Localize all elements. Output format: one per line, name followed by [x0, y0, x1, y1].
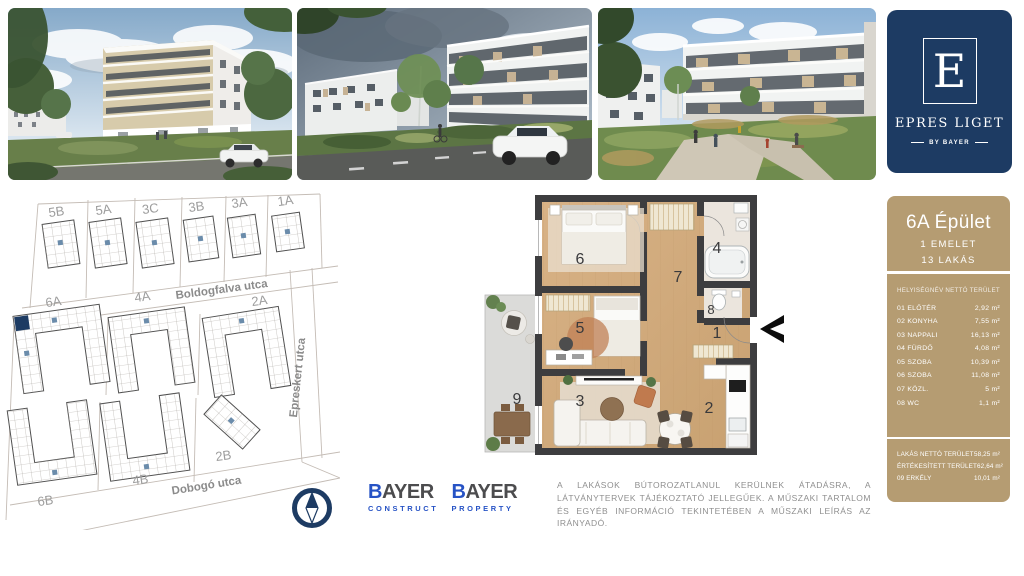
summary-name: 09 ERKÉLY	[897, 475, 932, 482]
room-name: 06 SZOBA	[897, 372, 932, 379]
label-building-4B: 4B	[131, 471, 149, 488]
label-building-2A: 2A	[250, 292, 268, 309]
building-3B[interactable]	[183, 216, 219, 262]
room-area-table: HELYISÉGNÉV NETTÓ TERÜLET 01 ELŐTÉR2,92 …	[887, 274, 1010, 437]
table-row: 08 WC1,1 m²	[897, 400, 1000, 407]
room-area: 10,39 m²	[971, 359, 1000, 366]
compass-icon	[295, 491, 330, 526]
photo-rendering-3-image	[598, 8, 876, 180]
table-row: 02 KONYHA7,55 m²	[897, 318, 1000, 325]
table-row: 06 SZOBA11,08 m²	[897, 372, 1000, 379]
room-area: 11,08 m²	[971, 372, 1000, 379]
floor-label: 1 EMELET	[891, 239, 1006, 250]
label-building-2B: 2B	[214, 447, 232, 464]
summary-row: ÉRTÉKESÍTETT TERÜLET62,64 m²	[897, 463, 1000, 470]
building-3C[interactable]	[136, 218, 174, 268]
panel-header: 6A Épület 1 EMELET 13 LAKÁS	[887, 196, 1010, 271]
label-building-5A: 5A	[94, 201, 112, 218]
photo-rendering-2-image	[297, 8, 592, 180]
table-row: 07 KÖZL.5 m²	[897, 386, 1000, 393]
balcony	[485, 295, 540, 452]
building-3A[interactable]	[227, 214, 260, 258]
bedroom-6-furniture	[548, 205, 644, 272]
column-room-name: HELYISÉGNÉV	[897, 287, 944, 294]
brand-letter: E	[933, 48, 967, 94]
street-epreskert: Epreskert utca	[288, 337, 308, 418]
building-5B[interactable]	[42, 220, 80, 268]
room-name: 02 KONYHA	[897, 318, 938, 325]
bayer-property-division: PROPERTY	[451, 505, 517, 513]
label-building-3B: 3B	[187, 198, 205, 215]
summary-name: ÉRTÉKESÍTETT TERÜLET	[897, 463, 977, 470]
brand-monogram: E	[923, 38, 977, 104]
table-row: 01 ELŐTÉR2,92 m²	[897, 305, 1000, 312]
building-2B[interactable]	[204, 395, 260, 449]
byline-text: BY BAYER	[929, 140, 970, 146]
room-number-5: 5	[576, 320, 585, 337]
table-header: HELYISÉGNÉV NETTÓ TERÜLET	[897, 287, 1000, 294]
byline-dash-left	[911, 142, 924, 143]
room-number-8: 8	[707, 302, 714, 317]
living-room-furniture	[554, 375, 660, 446]
room-number-1: 1	[713, 325, 722, 342]
room-number-2: 2	[705, 400, 714, 417]
building-5A[interactable]	[89, 218, 127, 268]
table-row: 04 FÜRDŐ4,08 m²	[897, 345, 1000, 352]
building-4B[interactable]	[100, 393, 190, 481]
room-number-9: 9	[513, 391, 522, 408]
building-2A[interactable]	[202, 306, 291, 397]
label-building-4A: 4A	[133, 288, 151, 305]
highlighted-unit[interactable]	[14, 315, 30, 331]
room-name: 04 FÜRDŐ	[897, 345, 933, 352]
bayer-property-logo: BAYER PROPERTY	[451, 482, 517, 513]
site-plan: 5B 5A 3C 3B 3A 1A 6A 4A 2A 6B 4B 2B Bold…	[0, 190, 340, 530]
summary-area: 10,01 m²	[974, 475, 1000, 482]
building-4A[interactable]	[108, 307, 195, 393]
label-building-3A: 3A	[230, 194, 248, 211]
bayer-construct-brand: BAYER	[368, 482, 438, 502]
room-name: 08 WC	[897, 400, 919, 407]
units-label: 13 LAKÁS	[891, 255, 1006, 266]
room-name: 05 SZOBA	[897, 359, 932, 366]
room-area: 7,55 m²	[975, 318, 1000, 325]
summary-area: 62,64 m²	[977, 463, 1003, 470]
bayer-construct-division: CONSTRUCT	[368, 505, 438, 513]
summary-row: LAKÁS NETTÓ TERÜLET58,25 m²	[897, 451, 1000, 458]
room-name: 03 NAPPALI	[897, 332, 938, 339]
disclaimer-text: A LAKÁSOK BÚTOROZATLANUL KERÜLNEK ÁTADÁS…	[557, 479, 871, 530]
label-building-6A: 6A	[44, 293, 62, 310]
room-area: 2,92 m²	[975, 305, 1000, 312]
column-net-area: NETTÓ TERÜLET	[945, 287, 1000, 294]
panel-summary: LAKÁS NETTÓ TERÜLET58,25 m² ÉRTÉKESÍTETT…	[887, 439, 1010, 482]
footer-logos: BAYER CONSTRUCT BAYER PROPERTY	[368, 482, 517, 513]
room-area: 5 m²	[985, 386, 1000, 393]
building-6A[interactable]	[13, 304, 110, 393]
photo-rendering-1-image	[8, 8, 292, 180]
brand-name: EPRES LIGET	[895, 116, 1004, 131]
room-name: 01 ELŐTÉR	[897, 305, 936, 312]
building-title: 6A Épület	[891, 212, 1006, 234]
byline-dash-right	[975, 142, 988, 143]
building-6B[interactable]	[7, 400, 97, 485]
room-name: 07 KÖZL.	[897, 386, 929, 393]
apartment-floor-plan: 1 2 3 4 5 6 7 8 9	[478, 186, 838, 466]
label-building-5B: 5B	[47, 203, 65, 220]
hall-wardrobe	[650, 204, 694, 230]
brand-byline: BY BAYER	[911, 140, 988, 146]
room-area: 1,1 m²	[979, 400, 1000, 407]
photo-rendering-street-view	[297, 8, 592, 180]
summary-row: 09 ERKÉLY10,01 m²	[897, 475, 1000, 482]
room-area: 4,08 m²	[975, 345, 1000, 352]
room-number-3: 3	[576, 393, 585, 410]
summary-name: LAKÁS NETTÓ TERÜLET	[897, 451, 974, 458]
street-dobogo: Dobogó utca	[171, 475, 243, 498]
table-row: 03 NAPPALI16,13 m²	[897, 332, 1000, 339]
summary-area: 58,25 m²	[974, 451, 1000, 458]
entry-door-opening	[750, 317, 757, 343]
label-building-3C: 3C	[141, 200, 160, 217]
table-row: 05 SZOBA10,39 m²	[897, 359, 1000, 366]
bayer-property-brand: BAYER	[451, 482, 517, 502]
brand-card: E EPRES LIGET BY BAYER	[887, 10, 1012, 173]
room-area: 16,13 m²	[971, 332, 1000, 339]
photo-rendering-street-corner	[8, 8, 292, 180]
photo-rendering-courtyard	[598, 8, 876, 180]
room-number-4: 4	[713, 240, 722, 257]
label-building-1A: 1A	[276, 192, 294, 209]
entrance-arrow-icon	[760, 315, 784, 343]
apartment-data-panel: 6A Épület 1 EMELET 13 LAKÁS HELYISÉGNÉV …	[887, 196, 1010, 502]
label-building-6B: 6B	[36, 492, 54, 509]
room-number-6: 6	[576, 251, 585, 268]
bayer-construct-logo: BAYER CONSTRUCT	[368, 482, 438, 513]
building-1A[interactable]	[272, 212, 305, 252]
room-number-7: 7	[674, 269, 683, 286]
